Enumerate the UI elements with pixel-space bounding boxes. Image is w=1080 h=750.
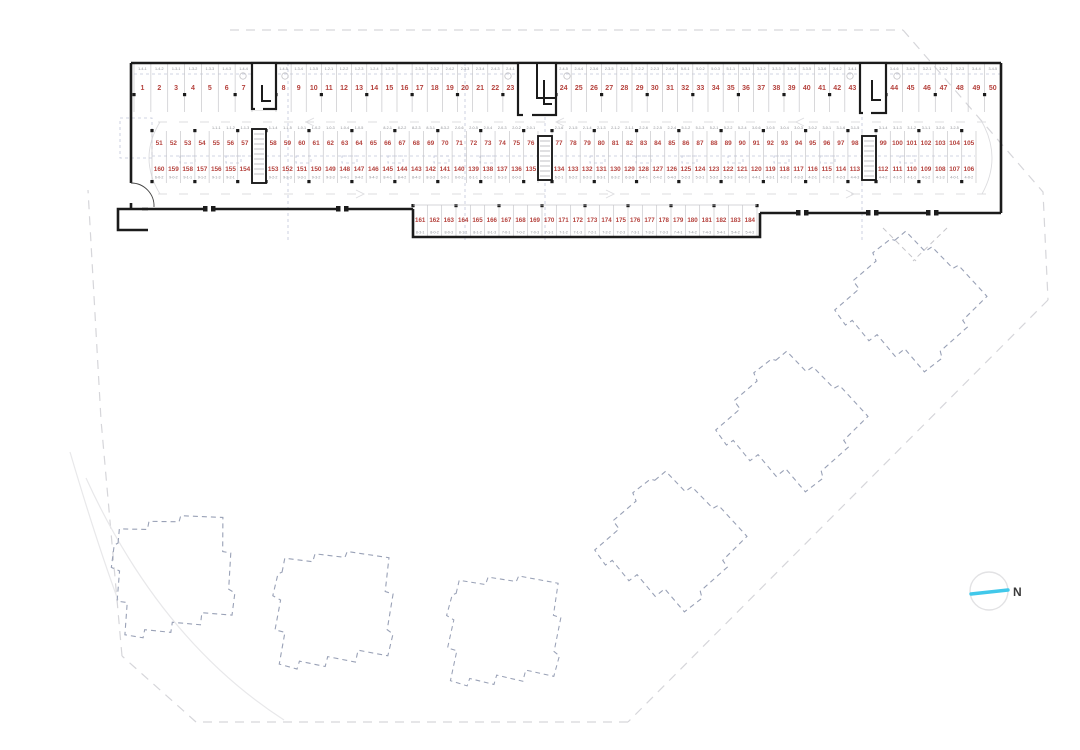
parking-space-76[interactable]: 762-0-1 (527, 126, 536, 147)
parking-space-41[interactable]: 413-3-6 (818, 67, 827, 92)
unit-label: 2-4-1 (506, 67, 515, 71)
dashed-building-outline (706, 337, 877, 508)
parking-space-81[interactable]: 812-1-2 (611, 126, 620, 147)
parking-space-125[interactable]: 1255-2-3 (681, 166, 692, 180)
unit-label: 6-3-2 (611, 176, 620, 180)
parking-space-171[interactable]: 1717-1-2 (558, 217, 569, 235)
parking-space-2[interactable]: 21-4-2 (155, 67, 164, 92)
unit-label: 5-2-1 (710, 126, 719, 130)
parking-space-45[interactable]: 453-4-3 (906, 67, 915, 92)
parking-space-175[interactable]: 1757-2-3 (616, 217, 627, 235)
parking-space-59[interactable]: 591-1-5 (283, 126, 292, 147)
parking-space-number: 83 (640, 140, 648, 147)
unit-label: 2-2-2 (635, 67, 644, 71)
parking-space-number: 21 (476, 85, 484, 92)
parking-space-number: 65 (370, 140, 378, 147)
parking-space-170[interactable]: 1707-1-1 (544, 217, 555, 235)
parking-space-159[interactable]: 1599-0-2 (168, 166, 179, 180)
parking-space-number: 56 (227, 140, 235, 147)
dashed-building-outline (585, 457, 756, 628)
parking-space-13[interactable]: 131-2-3 (355, 67, 364, 92)
parking-space-107[interactable]: 1074-0-1 (949, 166, 960, 180)
parking-space-1[interactable]: 11-4-1 (138, 67, 147, 92)
parking-space-number: 37 (757, 85, 765, 92)
unit-label: 2-4-3 (491, 67, 500, 71)
parking-space-85[interactable]: 852-2-4 (667, 126, 676, 147)
parking-space-127[interactable]: 1276-4-2 (652, 166, 663, 180)
parking-space-15[interactable]: 151-2-5 (385, 67, 394, 92)
parking-space-91[interactable]: 913-0-6 (752, 126, 761, 147)
unit-label: 2-0-3 (498, 126, 507, 130)
stair-core-f (862, 136, 876, 180)
boundary-left (88, 190, 122, 656)
parking-space-14[interactable]: 141-2-4 (370, 67, 379, 92)
parking-space-40[interactable]: 403-3-5 (802, 67, 811, 92)
parking-space-71[interactable]: 712-0-6 (455, 126, 464, 147)
parking-space-number: 58 (270, 140, 278, 147)
parking-space-164[interactable]: 1648-1-1 (458, 217, 469, 235)
parking-space-87[interactable]: 875-1-3 (696, 126, 705, 147)
parking-space-10[interactable]: 101-3-5 (310, 67, 319, 92)
parking-space-79[interactable]: 792-1-4 (583, 126, 592, 147)
parking-space-number: 75 (513, 140, 521, 147)
unit-label: 5-2-2 (724, 126, 733, 130)
parking-space-number: 72 (470, 140, 478, 147)
parking-space-63[interactable]: 631-0-4 (340, 126, 349, 147)
parking-space-174[interactable]: 1747-2-2 (601, 217, 612, 235)
parking-space-number: 104 (949, 140, 960, 147)
parking-space-29[interactable]: 292-2-2 (635, 67, 644, 92)
wall-bump (118, 209, 148, 230)
parking-space-31[interactable]: 312-4-6 (666, 67, 675, 92)
parking-space-72[interactable]: 722-0-5 (469, 126, 478, 147)
unit-label: 3-1-3 (893, 126, 902, 130)
parking-space-number: 124 (695, 166, 706, 173)
structural-column (712, 204, 715, 207)
mid-lower-row-segment: 1539-2-21529-2-31519-3-11509-3-21499-3-3… (264, 157, 538, 183)
structural-column (755, 204, 758, 207)
site-plan-page: 11-4-121-4-231-3-141-3-251-3-361-4-371-4… (0, 0, 1080, 750)
parking-space-54[interactable]: 54 (198, 140, 206, 147)
parking-space-105[interactable]: 105 (964, 140, 975, 147)
structural-column (183, 93, 186, 96)
parking-space-9[interactable]: 91-3-4 (294, 67, 303, 92)
parking-space-52[interactable]: 52 (170, 140, 178, 147)
unit-label: 3-2-3 (956, 67, 965, 71)
parking-space-70[interactable]: 708-3-2 (441, 126, 450, 147)
dashed-buildings (109, 217, 996, 694)
parking-space-68[interactable]: 688-2-3 (412, 126, 421, 147)
parking-space-102[interactable]: 1023-1-1 (921, 126, 932, 147)
parking-space-64[interactable]: 641-0-5 (355, 126, 364, 147)
unit-label: 1-2-1 (325, 67, 334, 71)
parking-space-number: 153 (268, 166, 279, 173)
parking-space-155[interactable]: 1559-2-1 (225, 166, 236, 180)
parking-space-104[interactable]: 1043-2-5 (949, 126, 960, 147)
parking-space-133[interactable]: 1336-2-2 (568, 166, 579, 180)
parking-space-82[interactable]: 822-1-1 (625, 126, 634, 147)
parking-space-126[interactable]: 1266-4-3 (666, 166, 677, 180)
parking-space-120[interactable]: 1204-4-1 (751, 166, 762, 180)
unit-label: 1-4-4 (239, 67, 248, 71)
parking-space-20[interactable]: 202-3-3 (461, 67, 470, 92)
parking-space-number: 172 (573, 217, 584, 224)
structural-column (150, 129, 153, 132)
parking-space-100[interactable]: 1003-1-3 (892, 126, 903, 147)
structural-column (737, 93, 740, 96)
parking-space-number: 38 (773, 85, 781, 92)
parking-space-136[interactable]: 1366-0-3 (511, 166, 522, 180)
parking-space-152[interactable]: 1529-2-3 (282, 166, 293, 180)
parking-space-22[interactable]: 222-4-3 (491, 67, 500, 92)
parking-space-121[interactable]: 1214-0-3 (737, 166, 748, 180)
parking-space-130[interactable]: 1306-3-2 (610, 166, 621, 180)
parking-space-number: 145 (382, 166, 393, 173)
parking-space-177[interactable]: 1777-3-2 (644, 217, 655, 235)
parking-space-90[interactable]: 905-2-4 (738, 126, 747, 147)
structural-column (719, 180, 722, 183)
parking-space-144[interactable]: 1448-4-2 (397, 166, 408, 180)
parking-space-67[interactable]: 678-2-2 (398, 126, 407, 147)
parking-space-173[interactable]: 1737-2-1 (587, 217, 598, 235)
parking-space-number: 102 (921, 140, 932, 147)
parking-space-176[interactable]: 1767-3-1 (630, 217, 641, 235)
parking-space-184[interactable]: 1845-4-3 (745, 217, 756, 235)
parking-space-number: 143 (411, 166, 422, 173)
parking-space-number: 17 (416, 85, 424, 92)
unit-label: 2-0-6 (455, 126, 464, 130)
parking-space-number: 42 (833, 85, 841, 92)
parking-space-132[interactable]: 1326-2-3 (582, 166, 593, 180)
structural-column (762, 180, 765, 183)
parking-space-8[interactable]: 81-4-5 (279, 67, 288, 92)
parking-space-36[interactable]: 363-3-1 (742, 67, 751, 92)
parking-space-38[interactable]: 383-3-3 (772, 67, 781, 92)
parking-space-5[interactable]: 51-3-3 (206, 67, 215, 92)
parking-space-49[interactable]: 493-4-4 (972, 67, 981, 92)
parking-space-75[interactable]: 752-0-2 (512, 126, 521, 147)
parking-space-95[interactable]: 953-0-2 (808, 126, 817, 147)
parking-space-131[interactable]: 1316-3-1 (596, 166, 607, 180)
parking-space-60[interactable]: 601-0-1 (297, 126, 306, 147)
parking-space-146[interactable]: 1469-4-3 (368, 166, 379, 180)
structural-column (350, 180, 353, 183)
parking-space-6[interactable]: 61-4-3 (222, 67, 231, 92)
parking-space-139[interactable]: 1396-1-1 (468, 166, 479, 180)
structural-column (917, 129, 920, 132)
unit-label: 1-1-1 (212, 126, 221, 130)
parking-space-80[interactable]: 802-1-3 (597, 126, 606, 147)
unit-label: 2-1-2 (611, 126, 620, 130)
unit-label: 2-3-6 (590, 67, 599, 71)
parking-space-55[interactable]: 551-1-1 (212, 126, 221, 147)
unit-label: 1-0-3 (326, 126, 335, 130)
parking-space-117[interactable]: 1174-3-3 (793, 166, 804, 180)
structural-column (762, 129, 765, 132)
parking-space-181[interactable]: 1817-4-3 (702, 217, 713, 235)
parking-space-108[interactable]: 1084-1-3 (935, 166, 946, 180)
parking-space-number: 163 (444, 217, 455, 224)
parking-space-118[interactable]: 1184-3-2 (779, 166, 790, 180)
unit-label: 1-4-1 (138, 67, 147, 71)
parking-space-94[interactable]: 943-0-3 (794, 126, 803, 147)
parking-space-number: 86 (682, 140, 690, 147)
mid-upper-row-segment: 51525354551-1-1561-1-2571-1-3 (150, 126, 252, 157)
parking-space-57[interactable]: 571-1-3 (241, 126, 250, 147)
unit-label: 8-0-3 (445, 231, 454, 235)
parking-space-112[interactable]: 1124-4-2 (878, 166, 889, 180)
unit-label: 8-1-3 (488, 231, 497, 235)
unit-label: 1-3-3 (206, 67, 215, 71)
parking-space-97[interactable]: 973-1-6 (837, 126, 846, 147)
parking-space-109[interactable]: 1094-1-2 (921, 166, 932, 180)
unit-label: 2-3-2 (431, 67, 440, 71)
parking-space-18[interactable]: 182-3-2 (431, 67, 440, 92)
parking-space-172[interactable]: 1727-1-3 (573, 217, 584, 235)
lane-arrow-left (796, 118, 804, 126)
parking-space-115[interactable]: 1154-2-2 (822, 166, 833, 180)
ramp-marking (883, 228, 947, 261)
parking-space-96[interactable]: 963-0-1 (822, 126, 831, 147)
parking-space-180[interactable]: 1807-4-2 (687, 217, 698, 235)
parking-space-number: 180 (687, 217, 698, 224)
unit-label: 8-4-3 (412, 176, 421, 180)
unit-label: 3-3-4 (787, 67, 796, 71)
parking-space-122[interactable]: 1225-3-3 (723, 166, 734, 180)
parking-space-148[interactable]: 1489-4-1 (339, 166, 350, 180)
parking-space-77[interactable]: 772-1-6 (555, 126, 564, 147)
parking-space-19[interactable]: 192-4-2 (446, 67, 455, 92)
parking-space-46[interactable]: 463-2-1 (923, 67, 932, 92)
unit-label: 1-1-4 (269, 126, 278, 130)
parking-space-39[interactable]: 393-3-4 (787, 67, 796, 92)
parking-space-4[interactable]: 41-3-2 (189, 67, 198, 92)
parking-space-3[interactable]: 31-3-1 (172, 67, 181, 92)
parking-space-number: 149 (325, 166, 336, 173)
parking-space-33[interactable]: 335-0-2 (696, 67, 705, 92)
parking-space-178[interactable]: 1787-3-3 (659, 217, 670, 235)
parking-space-160[interactable]: 1606-0-2 (154, 166, 165, 180)
parking-space-74[interactable]: 742-0-3 (498, 126, 507, 147)
parking-space-number: 136 (511, 166, 522, 173)
parking-space-number: 46 (923, 85, 931, 92)
parking-space-150[interactable]: 1509-3-2 (311, 166, 322, 180)
parking-space-167[interactable]: 1677-0-1 (501, 217, 512, 235)
structural-column (193, 180, 196, 183)
parking-space-number: 112 (878, 166, 889, 173)
parking-space-98[interactable]: 983-1-5 (851, 126, 860, 147)
parking-space-58[interactable]: 581-1-4 (269, 126, 278, 147)
parking-space-number: 35 (727, 85, 735, 92)
parking-space-116[interactable]: 1164-2-1 (808, 166, 819, 180)
parking-space-25[interactable]: 252-4-4 (574, 67, 583, 92)
structural-column (593, 180, 596, 183)
parking-space-number: 4 (191, 85, 195, 92)
unit-label: 5-0-1 (681, 67, 690, 71)
parking-space-number: 11 (325, 85, 333, 92)
parking-space-99[interactable]: 993-1-4 (879, 126, 888, 147)
parking-space-17[interactable]: 172-3-1 (415, 67, 424, 92)
unit-label: 6-1-3 (498, 176, 507, 180)
parking-space-number: 3 (174, 85, 178, 92)
parking-space-56[interactable]: 561-1-2 (226, 126, 235, 147)
parking-space-61[interactable]: 611-0-2 (312, 126, 321, 147)
parking-space-169[interactable]: 1697-0-3 (530, 217, 541, 235)
site-plan-canvas: 11-4-121-4-231-3-141-3-251-3-361-4-371-4… (0, 0, 1080, 750)
unit-label: 2-4-6 (666, 67, 675, 71)
parking-space-88[interactable]: 885-2-1 (710, 126, 719, 147)
parking-space-53[interactable]: 53 (184, 140, 192, 147)
parking-space-number: 117 (793, 166, 804, 173)
parking-space-11[interactable]: 111-2-1 (325, 67, 334, 92)
parking-space-number: 116 (808, 166, 819, 173)
unit-label: 7-2-1 (588, 231, 597, 235)
parking-space-number: 10 (310, 85, 318, 92)
parking-space-51[interactable]: 51 (156, 140, 164, 147)
parking-space-number: 174 (601, 217, 612, 224)
parking-space-153[interactable]: 1539-2-2 (268, 166, 279, 180)
parking-space-161[interactable]: 1618-3-1 (415, 217, 426, 235)
parking-space-number: 168 (515, 217, 526, 224)
parking-space-number: 170 (544, 217, 555, 224)
top-row-segment: 443-4-6453-4-3463-2-1473-2-2483-2-3493-4… (884, 63, 1001, 112)
parking-space-129[interactable]: 1296-3-3 (624, 166, 635, 180)
parking-space-113[interactable]: 1134-4-3 (850, 166, 861, 180)
parking-space-30[interactable]: 302-2-3 (650, 67, 659, 92)
parking-space-50[interactable]: 503-4-5 (988, 67, 997, 92)
parking-space-142[interactable]: 1428-3-3 (425, 166, 436, 180)
parking-space-145[interactable]: 1458-4-1 (382, 166, 393, 180)
structural-column (365, 93, 368, 96)
stair-cores (252, 63, 886, 183)
parking-space-37[interactable]: 373-3-2 (757, 67, 766, 92)
parking-space-number: 30 (651, 85, 659, 92)
parking-space-48[interactable]: 483-2-3 (956, 67, 965, 92)
parking-space-168[interactable]: 1687-0-2 (515, 217, 526, 235)
parking-space-134[interactable]: 1346-2-1 (554, 166, 565, 180)
parking-space-140[interactable]: 1406-0-2 (454, 166, 465, 180)
unit-label: 3-0-6 (752, 126, 761, 130)
parking-space-128[interactable]: 1286-4-1 (638, 166, 649, 180)
parking-space-143[interactable]: 1438-4-3 (411, 166, 422, 180)
unit-label: 8-2-3 (412, 126, 421, 130)
parking-space-111[interactable]: 1114-1-5 (892, 166, 902, 180)
parking-space-number: 14 (370, 85, 378, 92)
parking-space-28[interactable]: 282-2-1 (620, 67, 629, 92)
structural-column (677, 180, 680, 183)
parking-space-65[interactable]: 65 (370, 140, 378, 147)
parking-space-138[interactable]: 1386-1-2 (483, 166, 494, 180)
parking-space-number: 51 (156, 140, 164, 147)
parking-space-149[interactable]: 1499-3-3 (325, 166, 336, 180)
parking-space-42[interactable]: 423-4-2 (833, 67, 842, 92)
parking-space-124[interactable]: 1245-3-1 (695, 166, 706, 180)
parking-space-114[interactable]: 1144-2-3 (836, 166, 847, 180)
parking-space-86[interactable]: 865-1-2 (682, 126, 691, 147)
parking-space-34[interactable]: 345-0-3 (711, 67, 720, 92)
parking-space-number: 141 (440, 166, 451, 173)
parking-space-123[interactable]: 1235-3-2 (709, 166, 720, 180)
parking-space-137[interactable]: 1376-1-3 (497, 166, 508, 180)
parking-space-number: 64 (355, 140, 363, 147)
parking-space-135[interactable]: 135 (526, 166, 537, 173)
parking-space-73[interactable]: 732-0-4 (484, 126, 493, 147)
unit-label: 3-4-4 (972, 67, 981, 71)
parking-space-21[interactable]: 212-3-4 (476, 67, 485, 92)
unit-label: 3-4-1 (848, 67, 857, 71)
parking-space-106[interactable]: 1064-0-2 (964, 166, 975, 180)
parking-space-163[interactable]: 1638-0-3 (444, 217, 455, 235)
parking-space-78[interactable]: 782-1-5 (569, 126, 578, 147)
unit-label: 5-3-3 (724, 176, 733, 180)
structural-column (150, 180, 153, 183)
parking-space-141[interactable]: 1416-0-1 (440, 166, 451, 180)
unit-label: 3-1-4 (879, 126, 888, 130)
parking-space-147[interactable]: 1479-4-2 (354, 166, 365, 180)
parking-space-103[interactable]: 1033-2-6 (935, 126, 946, 147)
parking-space-101[interactable]: 1013-1-2 (906, 126, 917, 147)
parking-space-32[interactable]: 325-0-1 (681, 67, 690, 92)
unit-label: 6-3-3 (625, 176, 634, 180)
parking-space-26[interactable]: 262-3-6 (590, 67, 599, 92)
parking-space-151[interactable]: 1519-3-1 (296, 166, 307, 180)
parking-space-35[interactable]: 355-1-1 (726, 67, 735, 92)
parking-space-165[interactable]: 1658-1-2 (472, 217, 483, 235)
parking-space-182[interactable]: 1825-4-1 (716, 217, 727, 235)
unit-label: 1-4-3 (222, 67, 231, 71)
parking-space-number: 78 (570, 140, 578, 147)
parking-space-162[interactable]: 1628-0-2 (429, 217, 440, 235)
parking-space-183[interactable]: 1835-4-2 (730, 217, 741, 235)
parking-space-93[interactable]: 933-0-4 (780, 126, 789, 147)
parking-space-83[interactable]: 832-2-6 (639, 126, 648, 147)
parking-space-27[interactable]: 272-3-5 (605, 67, 614, 92)
parking-space-179[interactable]: 1797-4-1 (673, 217, 684, 235)
parking-space-62[interactable]: 621-0-3 (326, 126, 335, 147)
parking-space-number: 25 (575, 85, 583, 92)
parking-space-154[interactable]: 154 (240, 166, 251, 173)
parking-space-157[interactable]: 1579-1-2 (197, 166, 208, 180)
parking-space-92[interactable]: 923-0-5 (766, 126, 775, 147)
structural-column (593, 129, 596, 132)
parking-space-110[interactable]: 1104-1-1 (907, 166, 918, 180)
unit-label: 9-2-2 (269, 176, 278, 180)
parking-space-16[interactable]: 16 (401, 85, 409, 92)
parking-space-69[interactable]: 698-3-1 (426, 126, 435, 147)
parking-space-66[interactable]: 668-2-1 (383, 126, 392, 147)
parking-space-119[interactable]: 1194-3-1 (765, 166, 776, 180)
structural-column (454, 204, 457, 207)
parking-space-number: 184 (745, 217, 756, 224)
parking-space-89[interactable]: 895-2-2 (724, 126, 733, 147)
parking-space-158[interactable]: 1589-1-1 (182, 166, 193, 180)
parking-space-12[interactable]: 121-2-2 (340, 67, 349, 92)
structural-column (804, 129, 807, 132)
parking-space-156[interactable]: 1569-1-3 (211, 166, 222, 180)
parking-space-number: 6 (225, 85, 229, 92)
parking-space-number: 175 (616, 217, 627, 224)
road-curves (70, 452, 284, 720)
parking-space-84[interactable]: 842-2-5 (653, 126, 662, 147)
parking-space-number: 52 (170, 140, 178, 147)
parking-space-number: 32 (681, 85, 689, 92)
structural-column (626, 204, 629, 207)
structural-column (719, 129, 722, 132)
structural-column (669, 204, 672, 207)
parking-space-166[interactable]: 1668-1-3 (487, 217, 498, 235)
parking-space-number: 84 (654, 140, 662, 147)
unit-label: 4-1-2 (922, 176, 931, 180)
